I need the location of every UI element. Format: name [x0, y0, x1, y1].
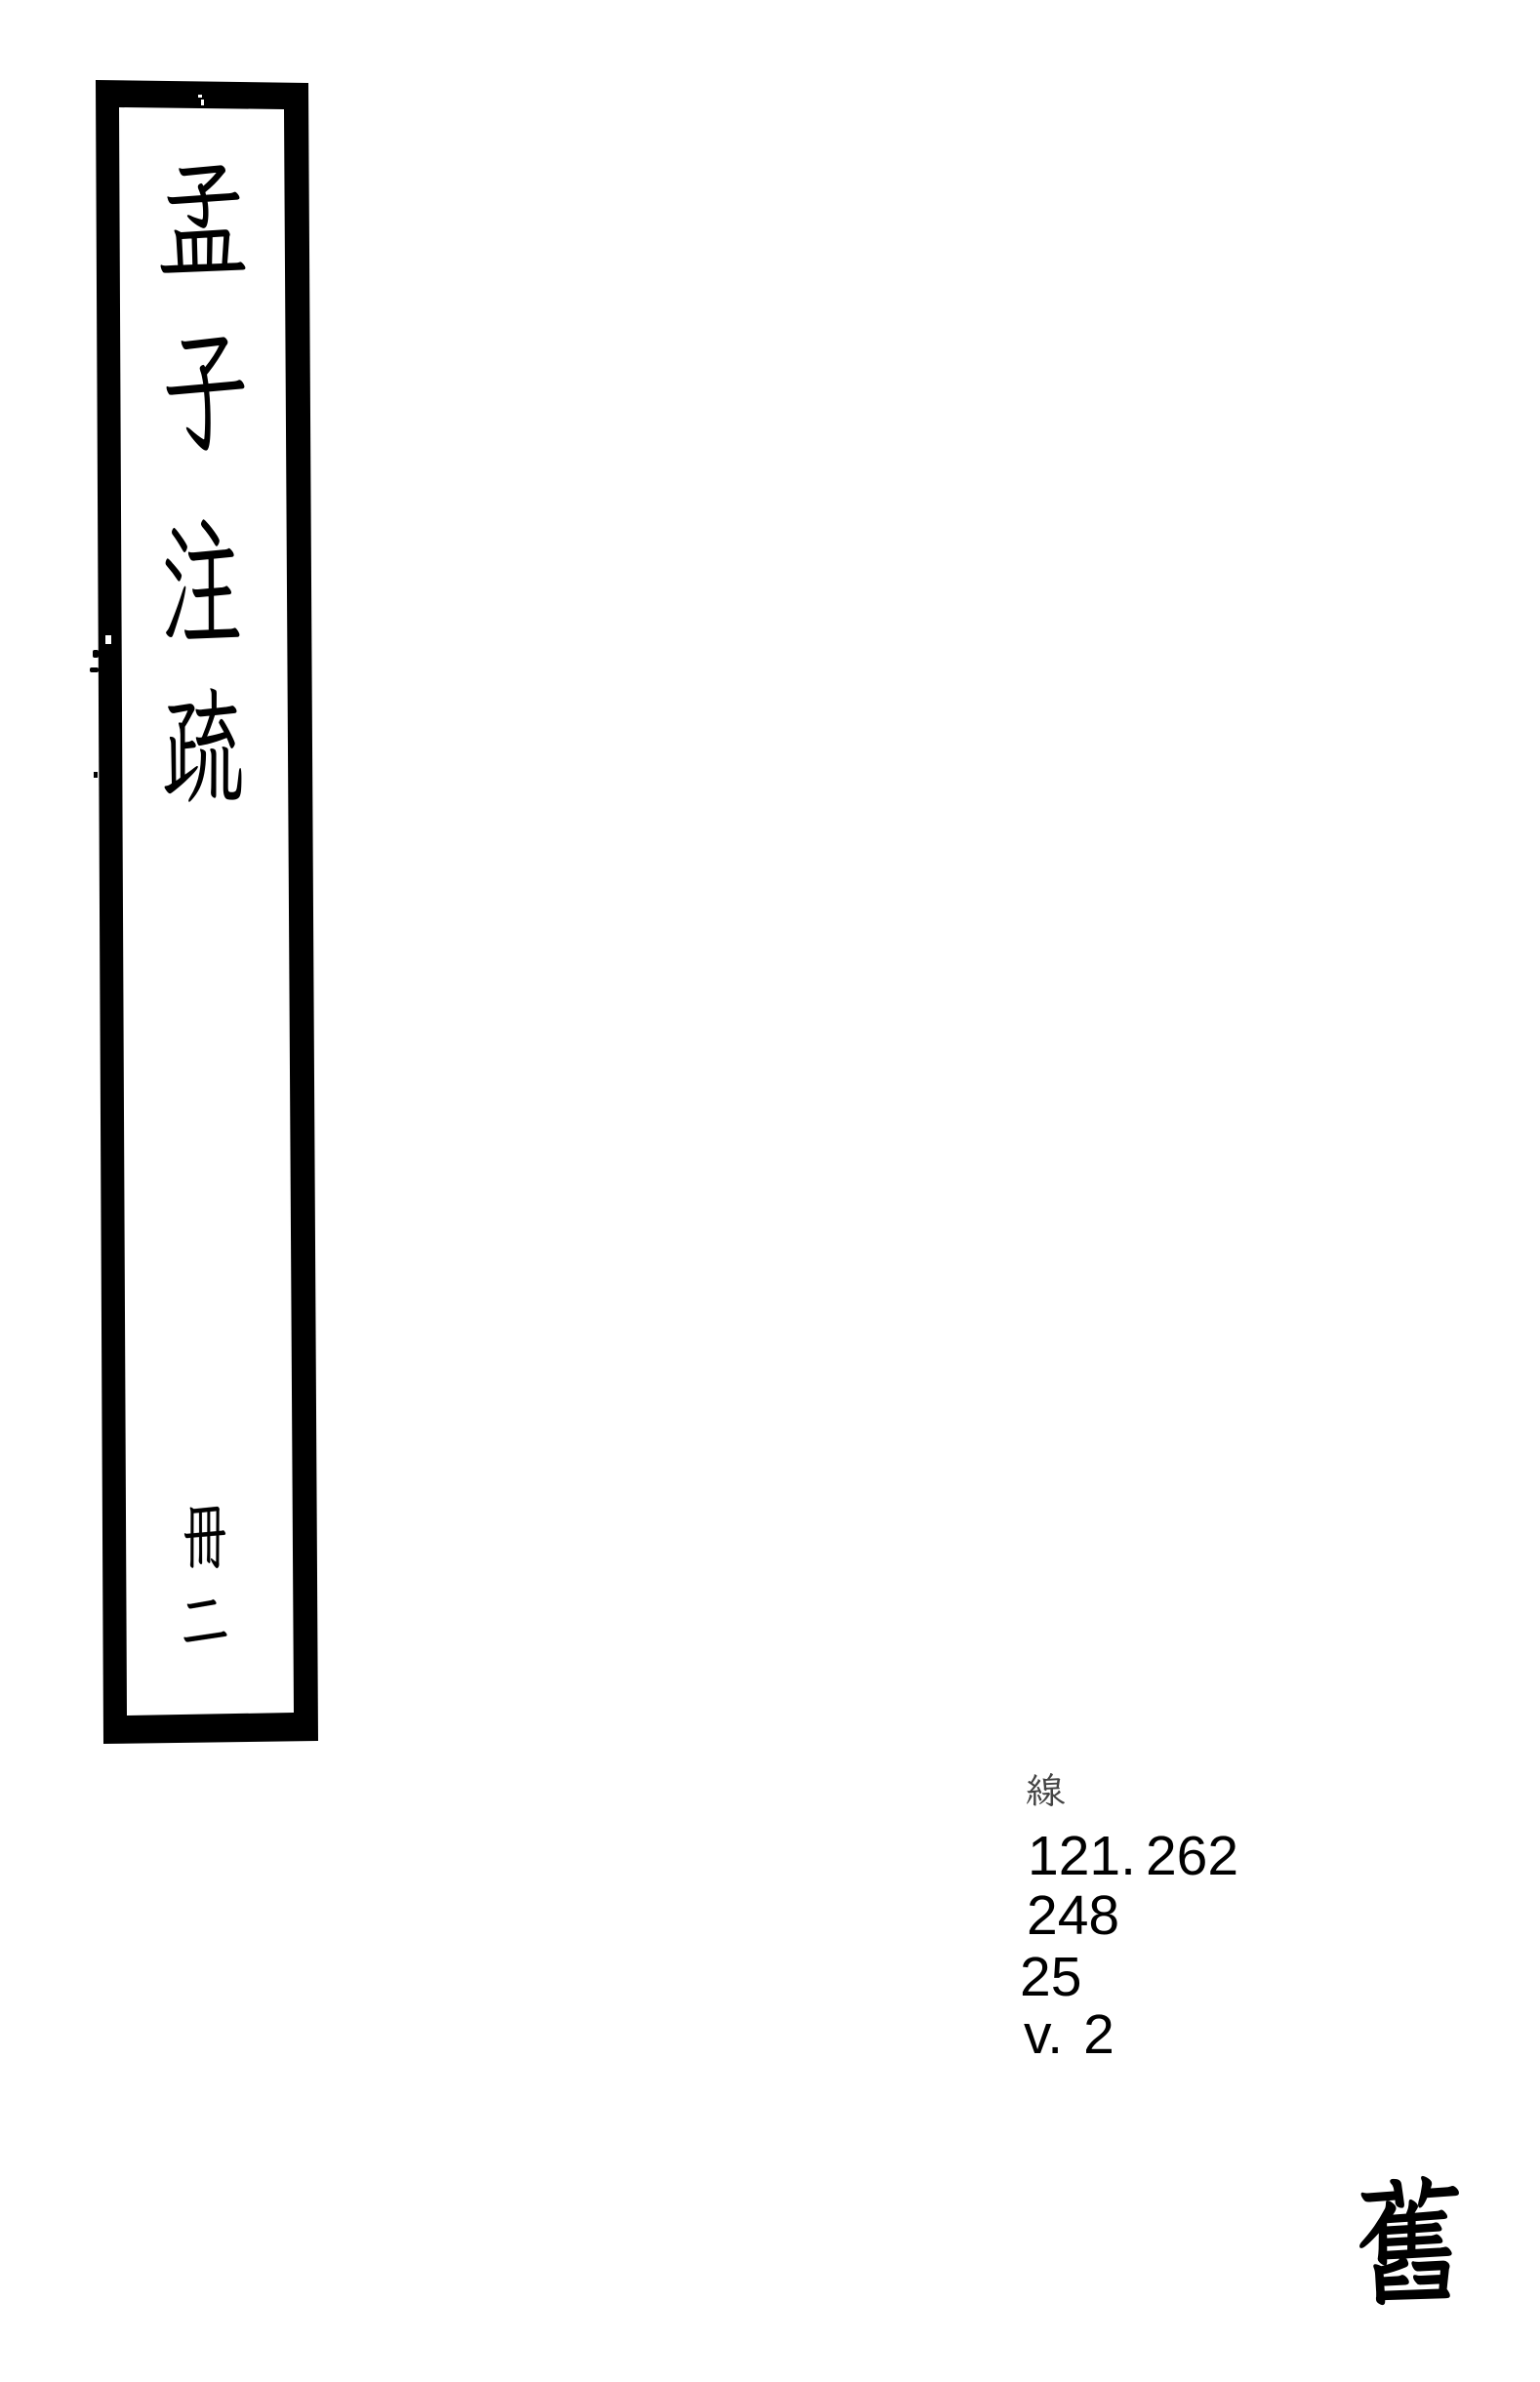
svg-text:248: 248: [1027, 1884, 1119, 1947]
svg-text:121.262: 121.262: [1028, 1825, 1238, 1887]
svg-text:25: 25: [1020, 1946, 1081, 2008]
